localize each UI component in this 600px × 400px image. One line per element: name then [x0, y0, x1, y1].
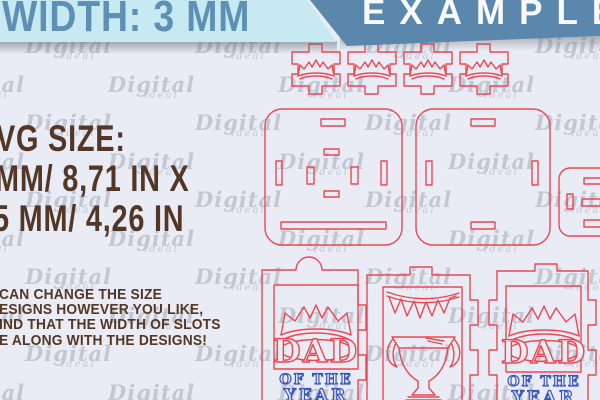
year-engraving-right: YEAR — [511, 388, 576, 400]
trophy-icon — [387, 337, 459, 400]
banner-shadow-left — [0, 41, 337, 54]
year-engraving-left: YEAR — [283, 386, 348, 400]
svg-size-info: VG SIZE: MM/ 8,71 IN X 5 MM/ 4,26 IN — [0, 119, 244, 239]
example-banner-label: EXAMPLE — [362, 0, 600, 33]
cover-image: DigitalidealDigitalidealDigitalidealDigi… — [0, 0, 600, 400]
note-line-2: ESIGNS HOWEVER YOU LIKE, — [0, 302, 221, 317]
base-panel-b — [416, 109, 550, 245]
dad-engraving-left: DAD — [273, 332, 359, 370]
base-panel-a — [265, 109, 402, 245]
dad-card-left: DAD OF THE YEAR — [262, 257, 366, 400]
dad-card-right: DAD OF THE YEAR — [489, 264, 596, 400]
size-dimension-line-2: 5 MM/ 4,26 IN — [0, 199, 189, 239]
note-line-1: CAN CHANGE THE SIZE — [0, 287, 221, 302]
size-dimension-line-1: MM/ 8,71 IN X — [0, 159, 190, 199]
width-banner: WIDTH: 3 MM — [0, 0, 338, 42]
note-line-4: E ALONG WITH THE DESIGNS! — [0, 333, 221, 348]
pennant-banner — [387, 292, 459, 318]
width-banner-label: WIDTH: 3 MM — [2, 0, 250, 42]
size-heading: VG SIZE: — [0, 119, 190, 159]
resize-note: CAN CHANGE THE SIZE ESIGNS HOWEVER YOU L… — [0, 287, 240, 348]
base-panel-c — [559, 168, 600, 236]
trophy-card — [367, 267, 478, 400]
note-line-3: IND THAT THE WIDTH OF SLOTS — [0, 317, 221, 332]
dad-engraving-right: DAD — [501, 333, 587, 371]
